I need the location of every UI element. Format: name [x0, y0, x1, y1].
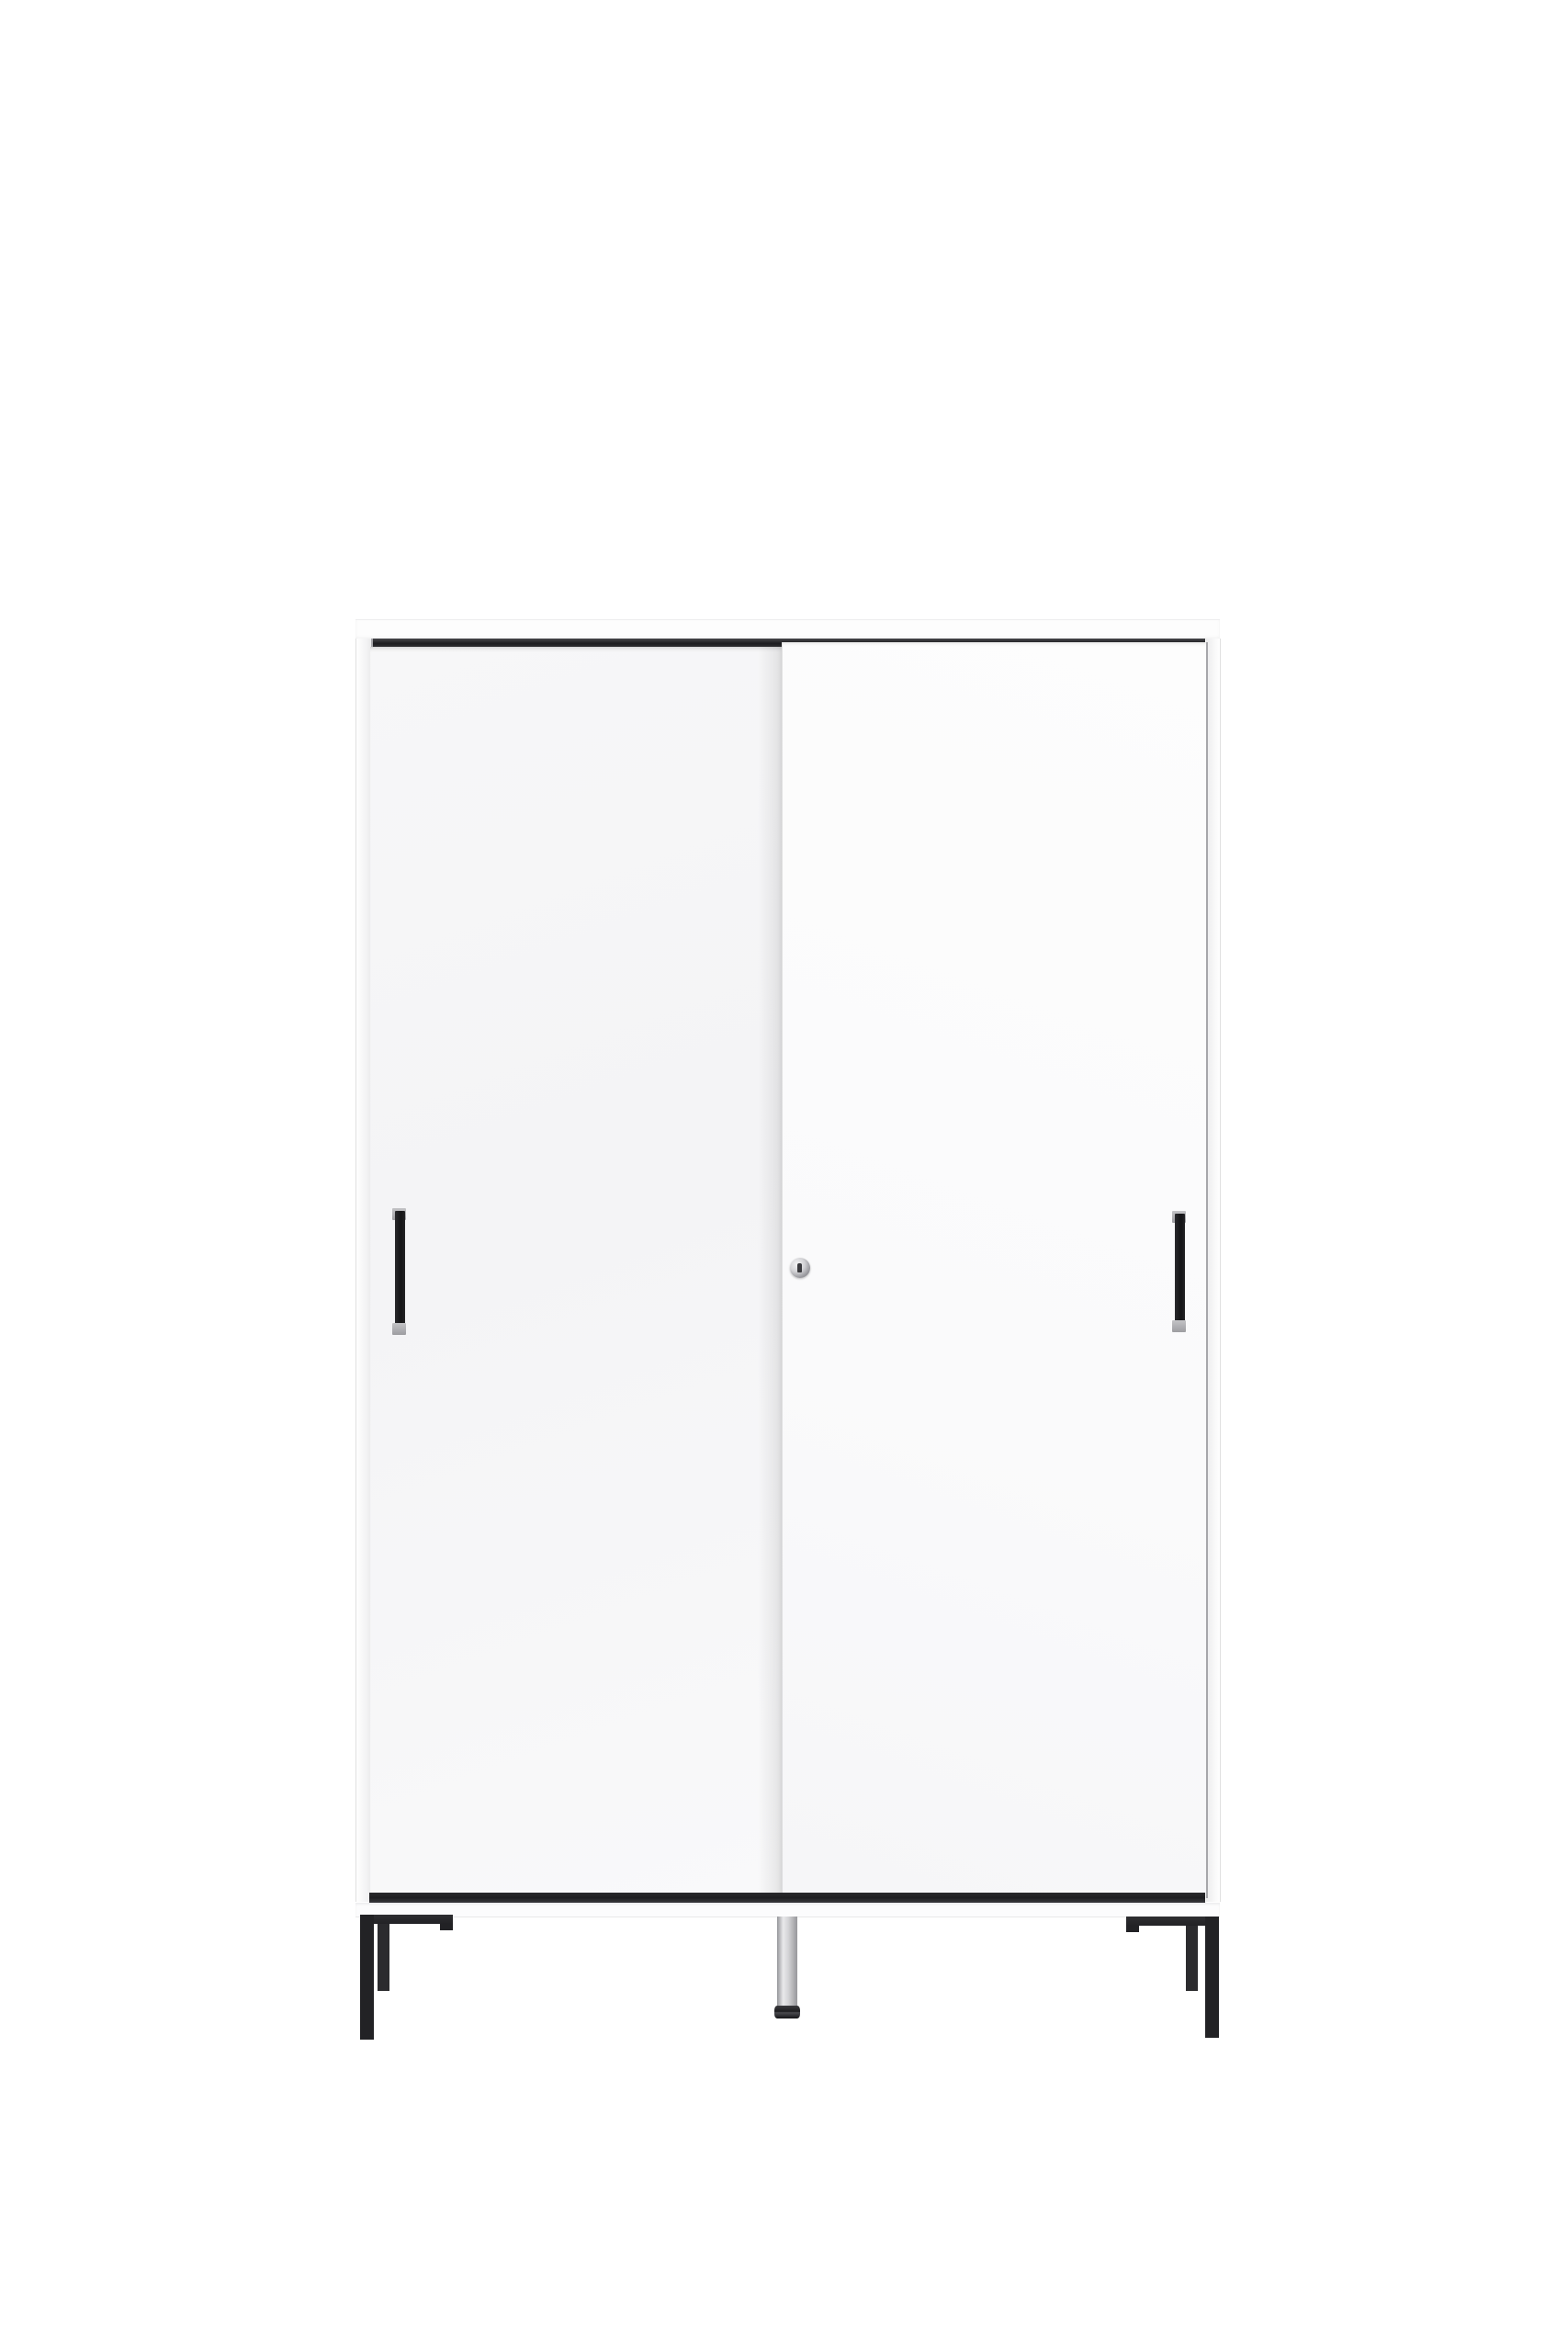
center-adjustable-foot-stem — [777, 1917, 797, 2006]
handle-standoff-bottom — [1172, 1320, 1186, 1332]
handle-bar — [395, 1211, 405, 1332]
left-leg-rail — [360, 1915, 453, 1924]
base-plinth — [355, 1903, 1220, 1917]
right-sliding-door — [782, 642, 1208, 1898]
keyhole-slot — [797, 1263, 802, 1272]
door-overlap-shadow — [758, 647, 782, 1894]
product-photo — [0, 0, 1568, 2352]
left-door-handle — [392, 1208, 407, 1335]
right-side-panel — [1206, 639, 1221, 1902]
right-front-leg — [1205, 1917, 1219, 2038]
right-leg-mount-nub — [1126, 1926, 1139, 1932]
keyhole-lock-icon — [790, 1258, 810, 1278]
right-rear-leg — [1186, 1926, 1198, 1991]
left-sliding-door — [370, 647, 782, 1894]
right-door-handle — [1172, 1211, 1187, 1332]
left-rear-leg — [378, 1924, 389, 1991]
left-leg-mount-nub — [440, 1924, 453, 1930]
handle-standoff-bottom — [392, 1323, 406, 1335]
handle-bar — [1175, 1214, 1185, 1329]
left-front-leg — [360, 1915, 374, 2040]
sliding-door-bottom-track — [369, 1893, 1205, 1903]
wardrobe-top-panel — [355, 619, 1220, 639]
center-adjustable-foot-disc — [774, 2006, 800, 2018]
